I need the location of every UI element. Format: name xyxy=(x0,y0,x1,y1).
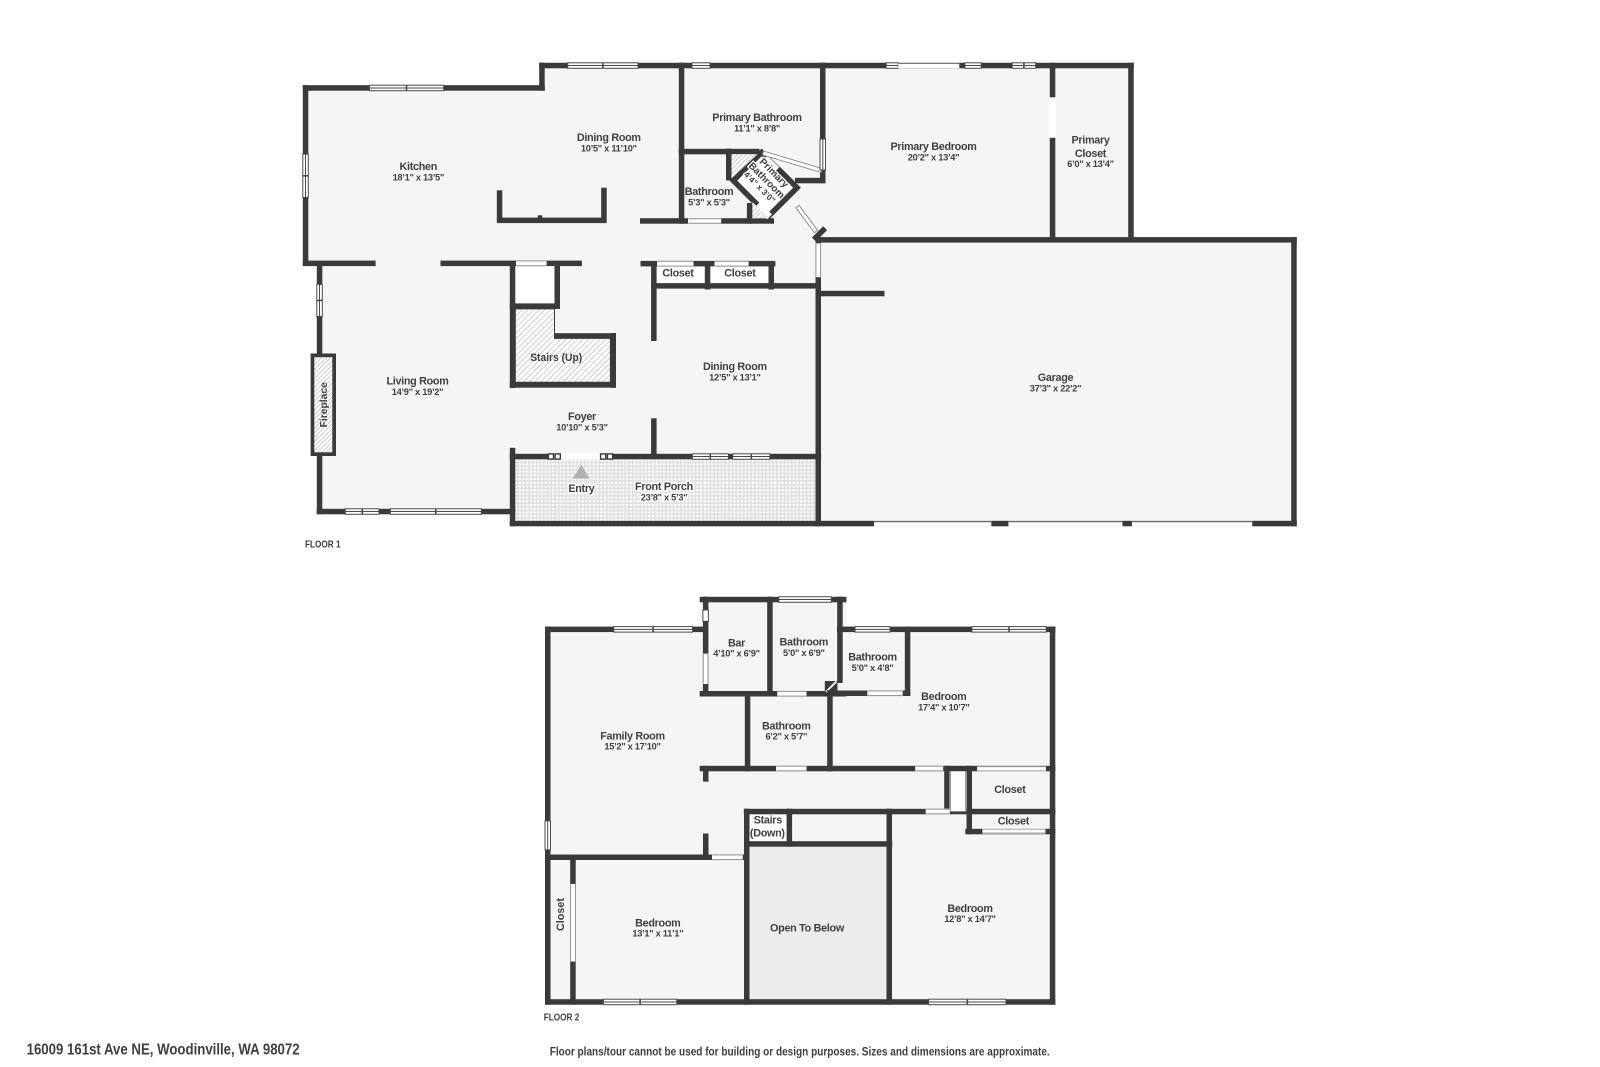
svg-text:10’5" x 11’10": 10’5" x 11’10" xyxy=(581,143,637,153)
svg-text:12’5" x 13’1": 12’5" x 13’1" xyxy=(709,372,760,382)
svg-text:Bar: Bar xyxy=(728,637,746,649)
svg-text:Bathroom: Bathroom xyxy=(762,720,811,732)
svg-text:15’2" x 17’10": 15’2" x 17’10" xyxy=(604,742,660,752)
svg-text:Closet: Closet xyxy=(724,268,756,280)
svg-text:Bedroom: Bedroom xyxy=(947,903,992,915)
svg-text:Stairs: Stairs xyxy=(754,814,783,826)
svg-text:(Down): (Down) xyxy=(750,827,785,839)
svg-text:5’0" x 6’9": 5’0" x 6’9" xyxy=(783,648,825,658)
svg-text:Primary Bedroom: Primary Bedroom xyxy=(890,141,976,153)
svg-text:Closet: Closet xyxy=(555,898,567,931)
svg-text:20’2" x 13’4": 20’2" x 13’4" xyxy=(908,152,959,162)
svg-text:Floor plans/tour cannot be use: Floor plans/tour cannot be used for buil… xyxy=(550,1044,1050,1058)
svg-text:Fireplace: Fireplace xyxy=(319,382,330,427)
svg-text:4’10" x 6’9": 4’10" x 6’9" xyxy=(713,649,760,659)
svg-text:Bedroom: Bedroom xyxy=(921,691,966,703)
svg-text:12’8" x 14’7": 12’8" x 14’7" xyxy=(944,914,995,924)
svg-text:Stairs (Up): Stairs (Up) xyxy=(530,352,582,364)
svg-text:6’2" x 5’7": 6’2" x 5’7" xyxy=(765,732,807,742)
svg-text:17’4" x 10’7": 17’4" x 10’7" xyxy=(918,703,969,713)
svg-text:FLOOR 2: FLOOR 2 xyxy=(544,1013,580,1024)
svg-text:Front Porch: Front Porch xyxy=(635,481,693,493)
svg-text:16009 161st Ave NE, Woodinvill: 16009 161st Ave NE, Woodinville, WA 9807… xyxy=(27,1042,300,1059)
svg-text:Garage: Garage xyxy=(1038,372,1074,384)
svg-text:Bathroom: Bathroom xyxy=(685,186,734,198)
svg-text:11’1" x 8’8": 11’1" x 8’8" xyxy=(734,123,780,133)
svg-text:Family Room: Family Room xyxy=(600,730,665,742)
svg-text:13’1" x 11’1": 13’1" x 11’1" xyxy=(632,929,683,939)
svg-text:Closet: Closet xyxy=(994,784,1026,796)
svg-text:Primary: Primary xyxy=(1071,135,1109,147)
svg-text:Bathroom: Bathroom xyxy=(848,652,897,664)
svg-text:Living Room: Living Room xyxy=(386,376,448,388)
svg-text:37’3" x 22’2": 37’3" x 22’2" xyxy=(1030,383,1081,393)
svg-text:23’8" x 5’3": 23’8" x 5’3" xyxy=(641,492,688,502)
svg-text:Primary Bathroom: Primary Bathroom xyxy=(712,112,801,124)
svg-text:Closet: Closet xyxy=(998,815,1030,827)
svg-text:6’0" x 13’4": 6’0" x 13’4" xyxy=(1067,159,1114,169)
svg-text:Closet: Closet xyxy=(662,268,694,280)
svg-text:Entry: Entry xyxy=(568,483,594,495)
svg-text:10’10" x 5’3": 10’10" x 5’3" xyxy=(556,422,607,432)
svg-text:14’9" x 19’2": 14’9" x 19’2" xyxy=(392,387,443,397)
svg-text:Dining Room: Dining Room xyxy=(577,132,641,144)
svg-text:5’0" x 4’8": 5’0" x 4’8" xyxy=(852,663,894,673)
svg-text:Dining Room: Dining Room xyxy=(703,361,767,373)
svg-text:Bedroom: Bedroom xyxy=(635,917,680,929)
svg-text:18’1" x 13’5": 18’1" x 13’5" xyxy=(393,172,444,182)
svg-text:Open To Below: Open To Below xyxy=(770,922,845,934)
svg-text:Bathroom: Bathroom xyxy=(780,637,829,649)
svg-text:Foyer: Foyer xyxy=(568,411,597,423)
svg-text:FLOOR 1: FLOOR 1 xyxy=(305,540,341,551)
svg-text:Kitchen: Kitchen xyxy=(400,161,438,173)
svg-text:5’3" x 5’3": 5’3" x 5’3" xyxy=(688,198,730,208)
